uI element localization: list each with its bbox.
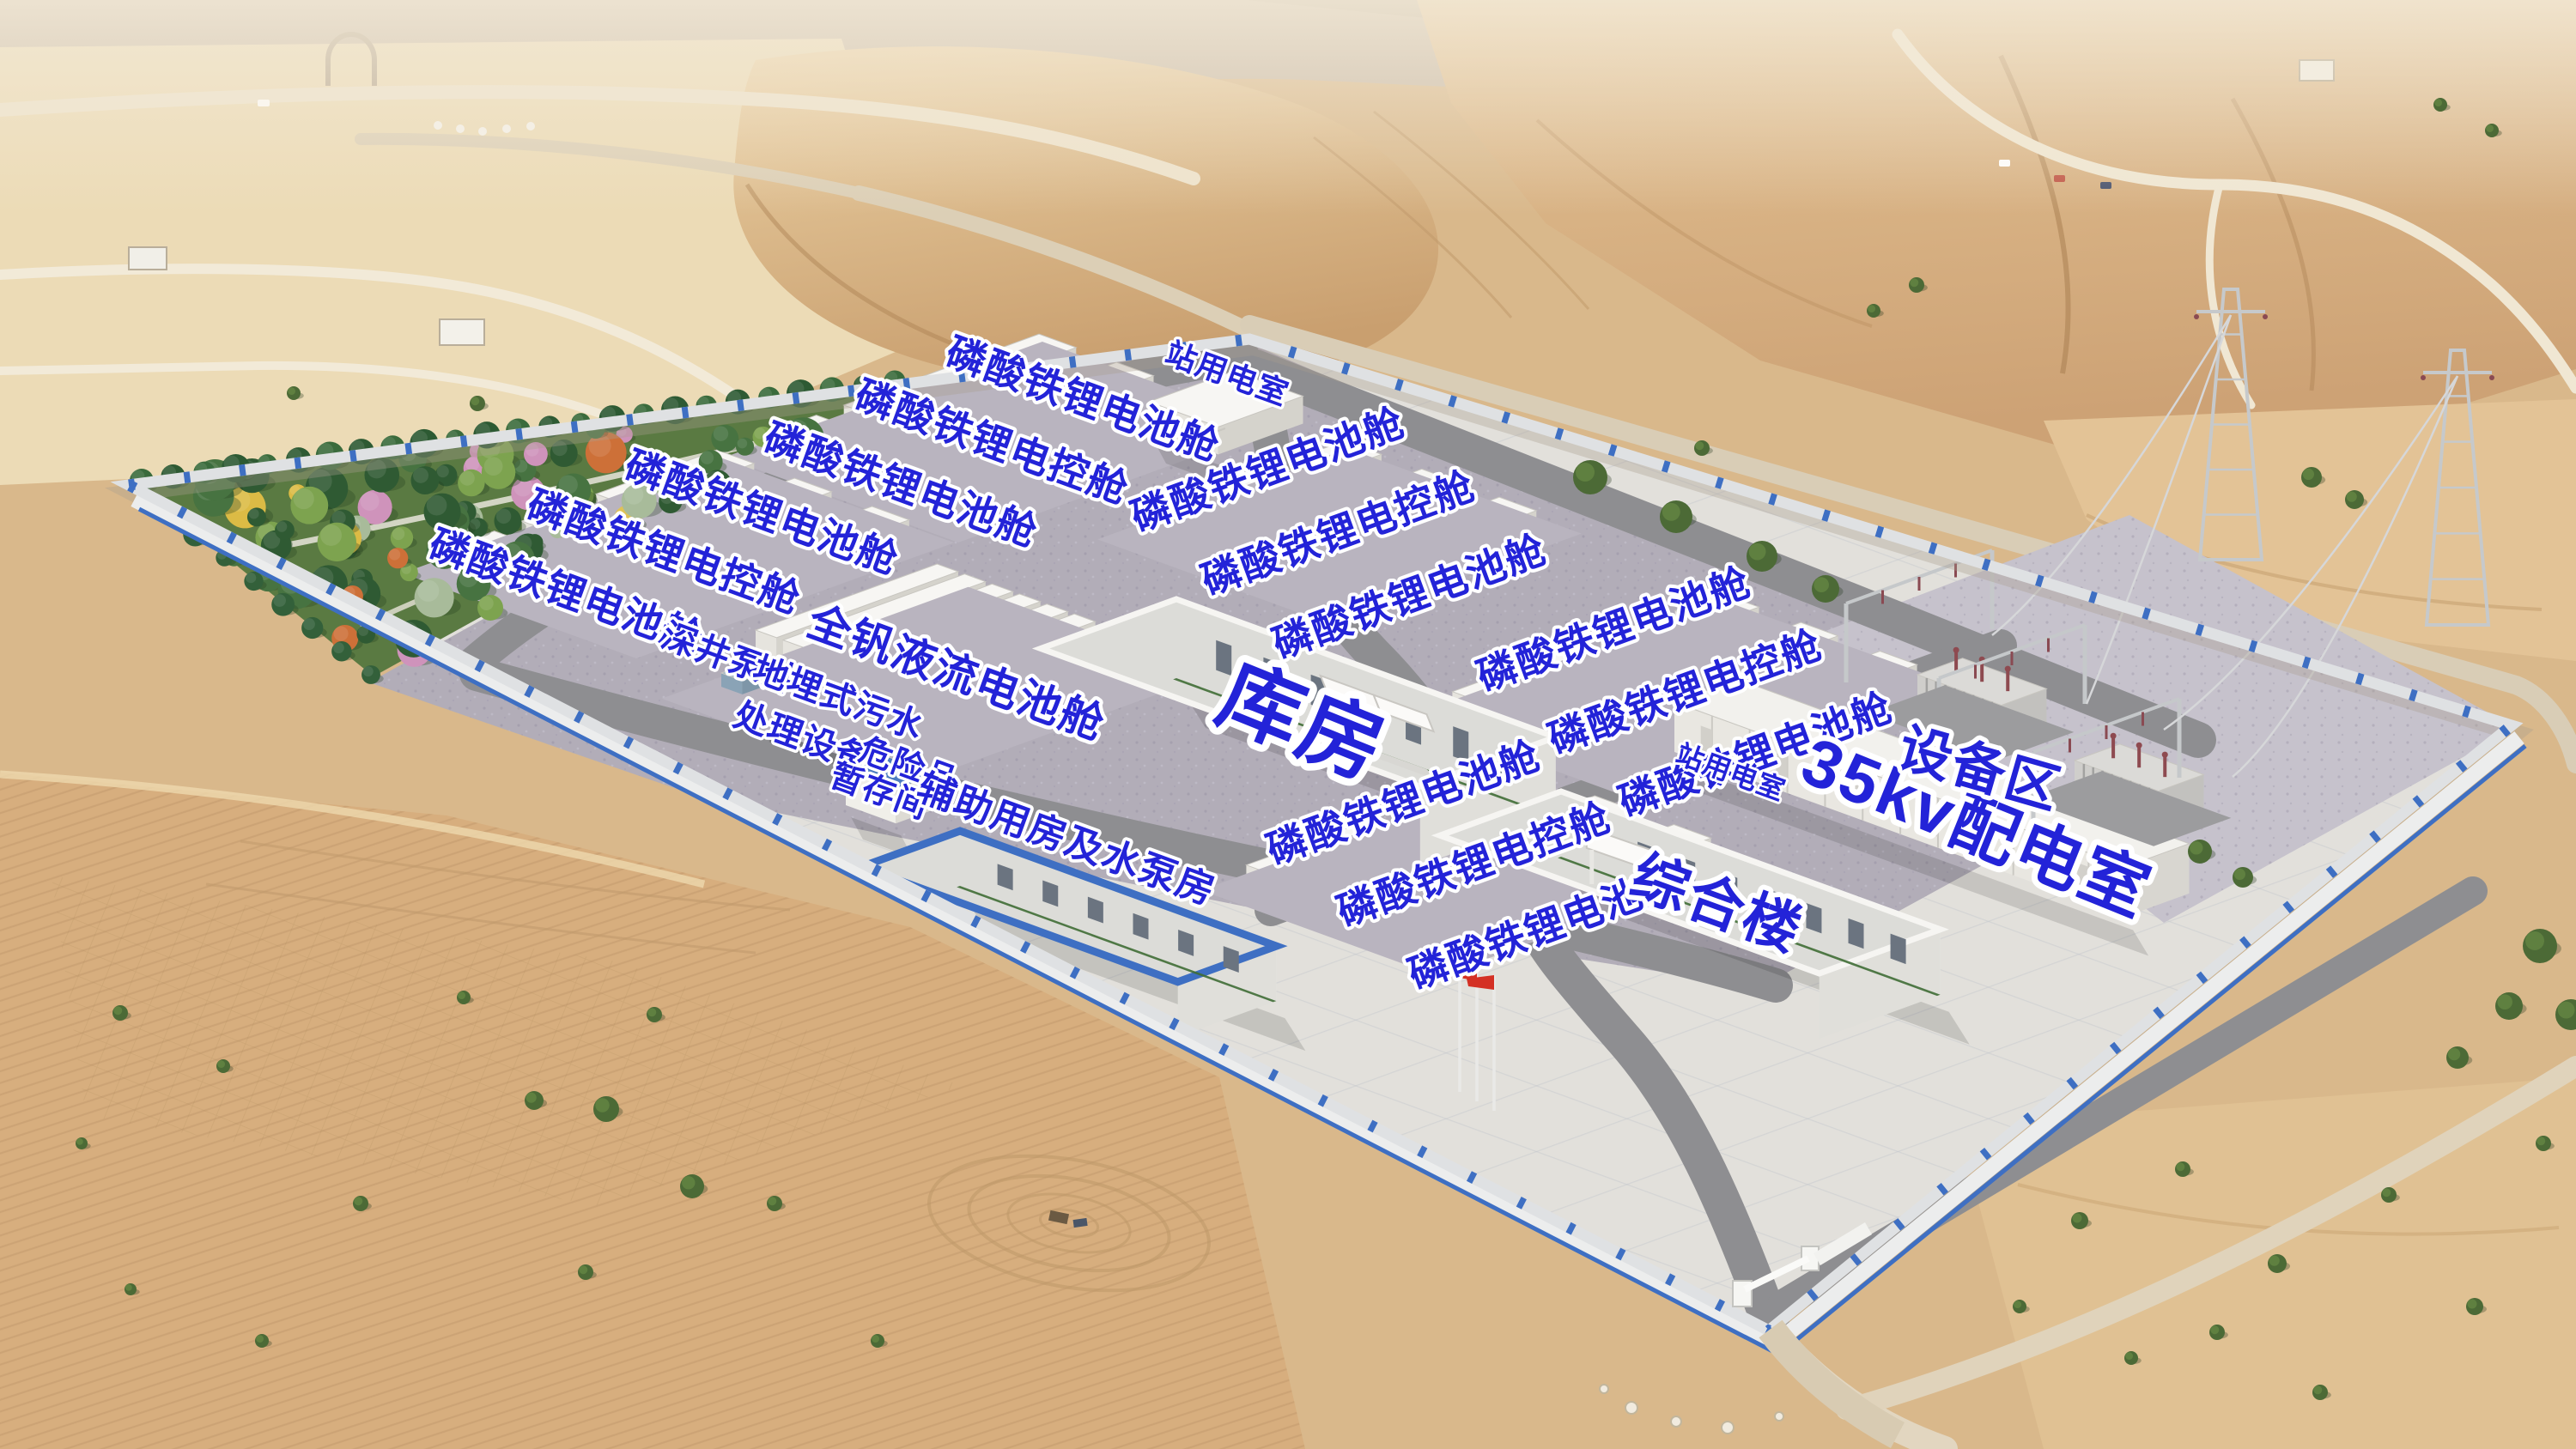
aerial-site-rendering: 站用电室磷酸铁锂电池舱磷酸铁锂电控舱磷酸铁锂电池舱磷酸铁锂电池舱磷酸铁锂电控舱磷…	[0, 0, 2576, 1449]
